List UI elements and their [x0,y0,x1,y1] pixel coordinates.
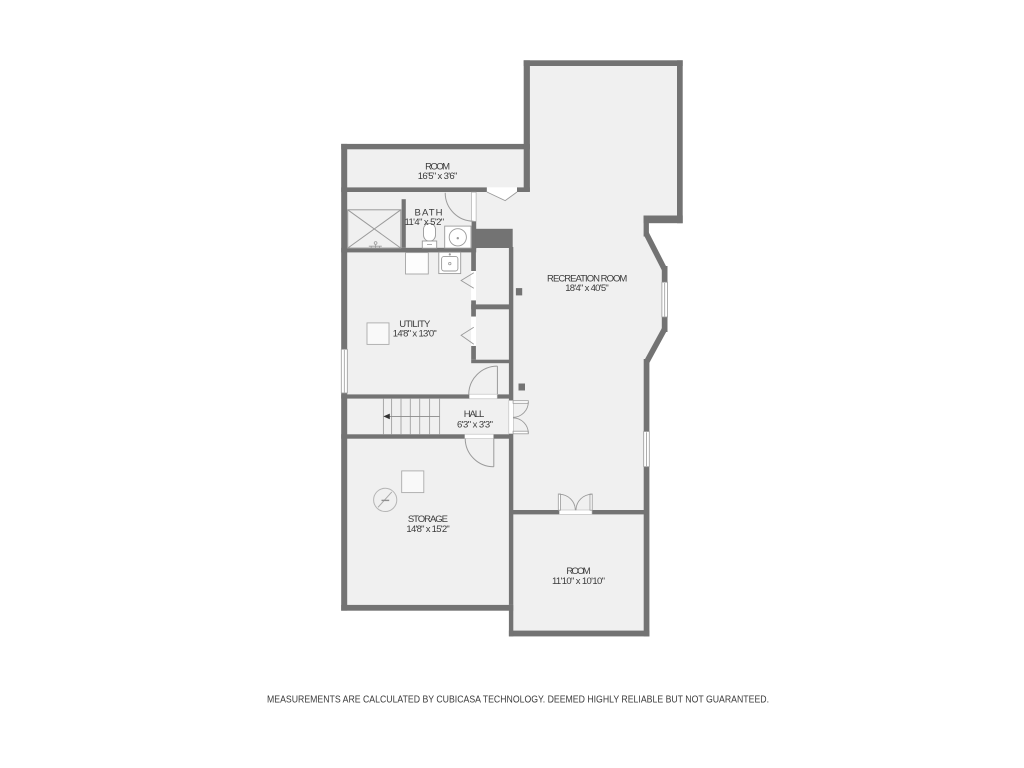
svg-text:6'3" x 3'3": 6'3" x 3'3" [457,420,493,431]
svg-text:11'4" x 5'2": 11'4" x 5'2" [404,217,444,228]
svg-text:HALL: HALL [464,409,485,420]
svg-text:MEASUREMENTS ARE CALCULATED BY: MEASUREMENTS ARE CALCULATED BY CUBICASA … [267,695,769,706]
svg-text:16'5" x 3'6": 16'5" x 3'6" [418,171,458,182]
svg-text:18'4" x 40'5": 18'4" x 40'5" [565,283,609,294]
svg-text:14'8" x 15'2": 14'8" x 15'2" [406,524,449,535]
svg-text:11'10" x 10'10": 11'10" x 10'10" [552,576,605,587]
svg-text:14'8" x 13'0": 14'8" x 13'0" [393,329,437,340]
